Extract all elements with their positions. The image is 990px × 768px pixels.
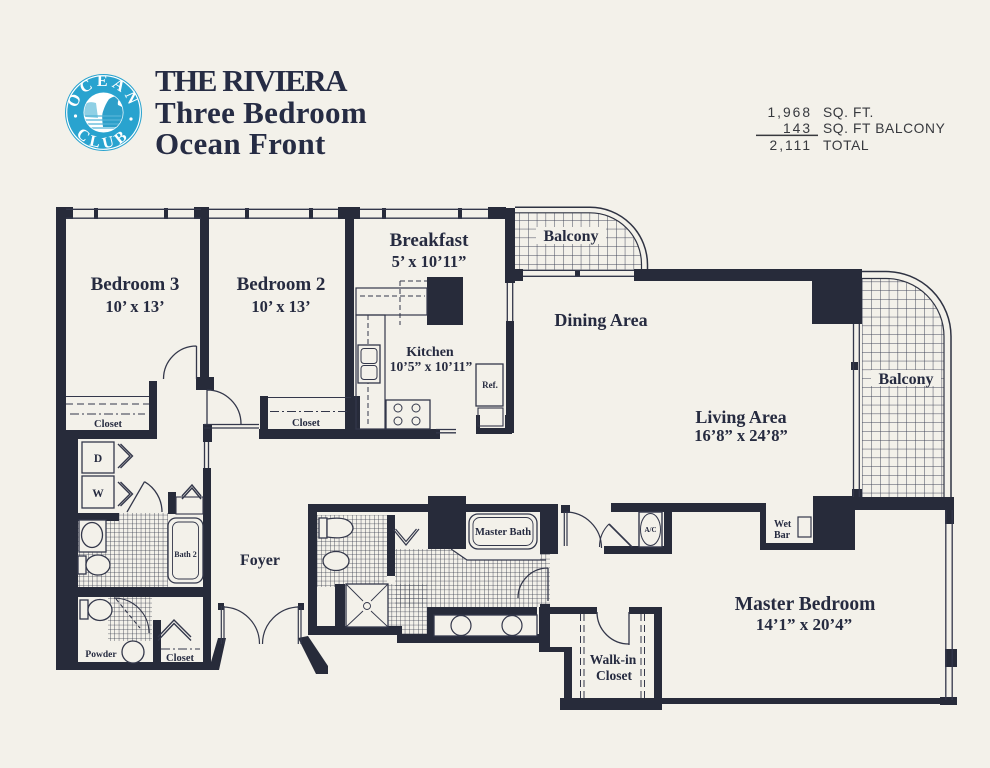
svg-text:Powder: Powder bbox=[85, 650, 117, 660]
svg-text:Wet: Wet bbox=[774, 519, 792, 530]
svg-text:A/C: A/C bbox=[644, 526, 656, 534]
svg-text:Closet: Closet bbox=[292, 418, 320, 429]
svg-text:Ref.: Ref. bbox=[482, 380, 498, 390]
svg-text:SQ. FT.: SQ. FT. bbox=[823, 105, 874, 120]
svg-text:10’ x 13’: 10’ x 13’ bbox=[251, 297, 310, 316]
svg-text:14’1” x 20’4”: 14’1” x 20’4” bbox=[756, 615, 852, 634]
svg-text:5’ x 10’11”: 5’ x 10’11” bbox=[392, 252, 467, 271]
svg-text:W: W bbox=[92, 488, 104, 500]
svg-text:Dining Area: Dining Area bbox=[554, 310, 647, 330]
svg-text:Closet: Closet bbox=[166, 653, 194, 664]
svg-text:Bar: Bar bbox=[774, 530, 791, 541]
svg-text:Walk-in: Walk-in bbox=[590, 652, 637, 667]
svg-text:THE RIVIERA: THE RIVIERA bbox=[155, 63, 348, 98]
svg-text:D: D bbox=[94, 453, 102, 465]
svg-text:Kitchen: Kitchen bbox=[406, 345, 454, 360]
svg-text:Breakfast: Breakfast bbox=[390, 230, 469, 251]
svg-text:10’ x 13’: 10’ x 13’ bbox=[105, 297, 164, 316]
svg-text:Master Bedroom: Master Bedroom bbox=[735, 594, 876, 615]
svg-text:1,968: 1,968 bbox=[767, 105, 812, 120]
svg-text:16’8” x 24’8”: 16’8” x 24’8” bbox=[694, 426, 788, 445]
svg-text:10’5” x 10’11”: 10’5” x 10’11” bbox=[390, 359, 473, 374]
svg-text:Living Area: Living Area bbox=[695, 407, 786, 427]
svg-text:Bedroom 2: Bedroom 2 bbox=[237, 274, 326, 295]
svg-text:Balcony: Balcony bbox=[878, 371, 933, 388]
svg-text:Bedroom 3: Bedroom 3 bbox=[91, 274, 180, 295]
svg-text:Foyer: Foyer bbox=[240, 552, 280, 569]
svg-text:Bath 2: Bath 2 bbox=[174, 550, 196, 559]
svg-text:Three Bedroom: Three Bedroom bbox=[155, 95, 367, 130]
svg-text:SQ. FT BALCONY: SQ. FT BALCONY bbox=[823, 121, 945, 136]
svg-text:143: 143 bbox=[783, 121, 812, 136]
svg-text:Ocean Front: Ocean Front bbox=[155, 126, 326, 161]
svg-text:2,111: 2,111 bbox=[770, 138, 812, 153]
svg-text:Closet: Closet bbox=[94, 419, 122, 430]
svg-text:Closet: Closet bbox=[596, 668, 632, 683]
svg-text:Master Bath: Master Bath bbox=[475, 527, 531, 538]
svg-text:TOTAL: TOTAL bbox=[823, 138, 869, 153]
svg-text:Balcony: Balcony bbox=[543, 228, 598, 245]
